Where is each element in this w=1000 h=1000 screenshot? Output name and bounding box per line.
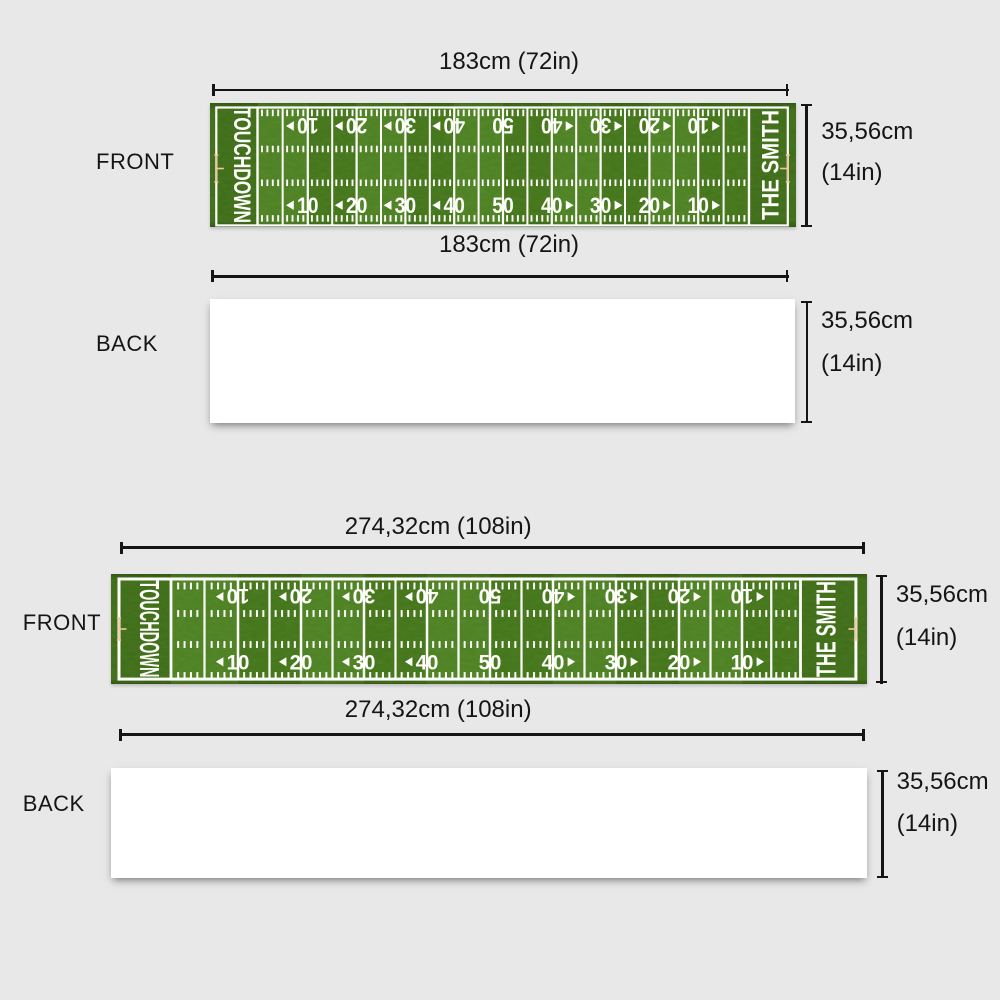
- svg-text:20: 20: [668, 651, 691, 674]
- svg-text:30: 30: [590, 193, 612, 218]
- svg-text:30: 30: [353, 584, 376, 607]
- svg-text:30: 30: [605, 651, 628, 674]
- svg-text:TOUCHDOWN: TOUCHDOWN: [228, 107, 255, 223]
- svg-text:40: 40: [542, 651, 565, 674]
- svg-text:10: 10: [731, 584, 754, 607]
- svg-text:50: 50: [492, 113, 514, 138]
- svg-text:TOUCHDOWN: TOUCHDOWN: [134, 581, 165, 678]
- svg-text:40: 40: [443, 193, 465, 218]
- svg-text:30: 30: [353, 651, 376, 674]
- svg-text:THE SMITH: THE SMITH: [758, 110, 785, 220]
- svg-text:50: 50: [492, 193, 514, 218]
- svg-text:THE SMITH: THE SMITH: [811, 581, 842, 677]
- svg-text:40: 40: [542, 584, 565, 607]
- svg-text:30: 30: [395, 193, 417, 218]
- svg-text:50: 50: [479, 584, 502, 607]
- svg-text:10: 10: [687, 193, 709, 218]
- svg-text:40: 40: [443, 113, 465, 138]
- svg-text:50: 50: [479, 651, 502, 674]
- svg-text:20: 20: [290, 584, 313, 607]
- svg-text:10: 10: [297, 113, 319, 138]
- svg-text:40: 40: [541, 113, 563, 138]
- svg-text:20: 20: [346, 193, 368, 218]
- svg-text:20: 20: [668, 584, 691, 607]
- svg-text:40: 40: [541, 193, 563, 218]
- svg-text:10: 10: [227, 584, 250, 607]
- svg-text:10: 10: [227, 651, 250, 674]
- svg-text:30: 30: [605, 584, 628, 607]
- svg-text:20: 20: [346, 113, 368, 138]
- svg-text:40: 40: [416, 651, 439, 674]
- svg-text:30: 30: [590, 113, 612, 138]
- svg-text:10: 10: [687, 113, 709, 138]
- svg-text:20: 20: [290, 651, 313, 674]
- svg-text:20: 20: [639, 193, 661, 218]
- svg-text:30: 30: [395, 113, 417, 138]
- svg-text:10: 10: [297, 193, 319, 218]
- svg-text:10: 10: [731, 651, 754, 674]
- svg-text:20: 20: [639, 113, 661, 138]
- svg-text:40: 40: [416, 584, 439, 607]
